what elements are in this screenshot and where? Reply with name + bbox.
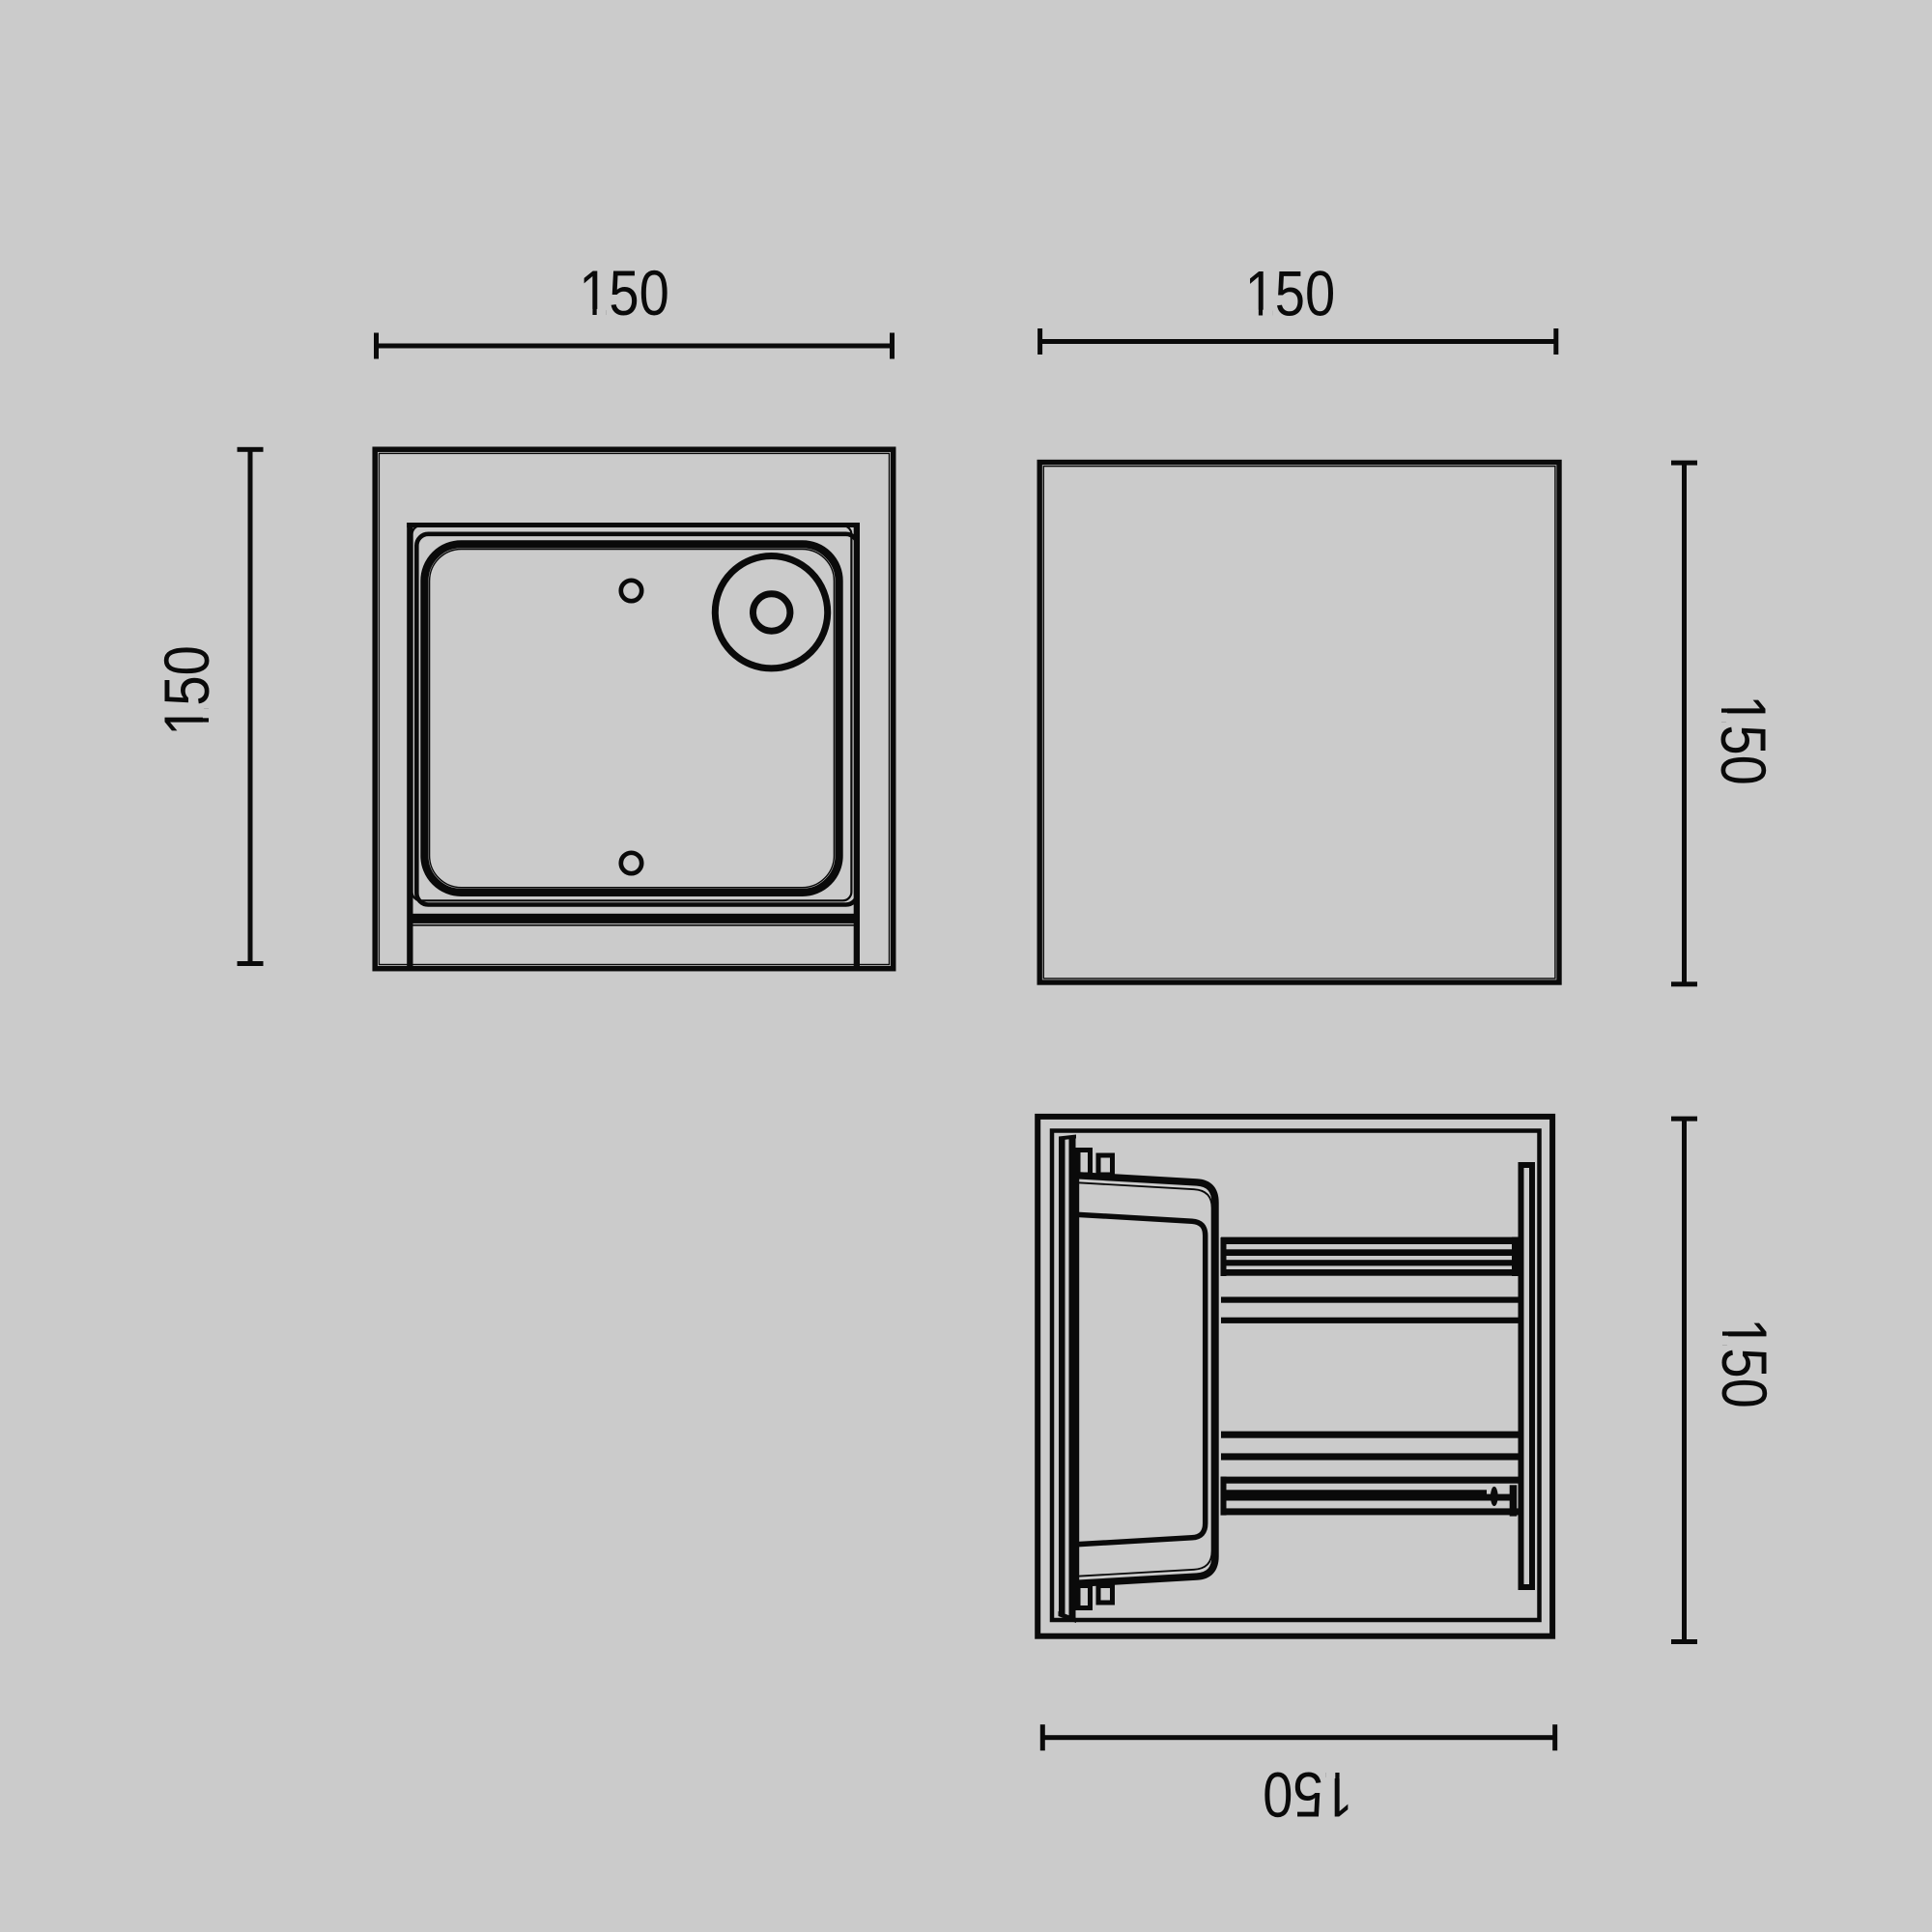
svg-text:150: 150 bbox=[1708, 695, 1778, 785]
svg-text:150: 150 bbox=[579, 258, 669, 328]
svg-text:150: 150 bbox=[1263, 1759, 1353, 1830]
svg-text:150: 150 bbox=[1709, 1318, 1779, 1408]
svg-text:150: 150 bbox=[152, 645, 222, 736]
svg-text:150: 150 bbox=[1245, 258, 1336, 328]
